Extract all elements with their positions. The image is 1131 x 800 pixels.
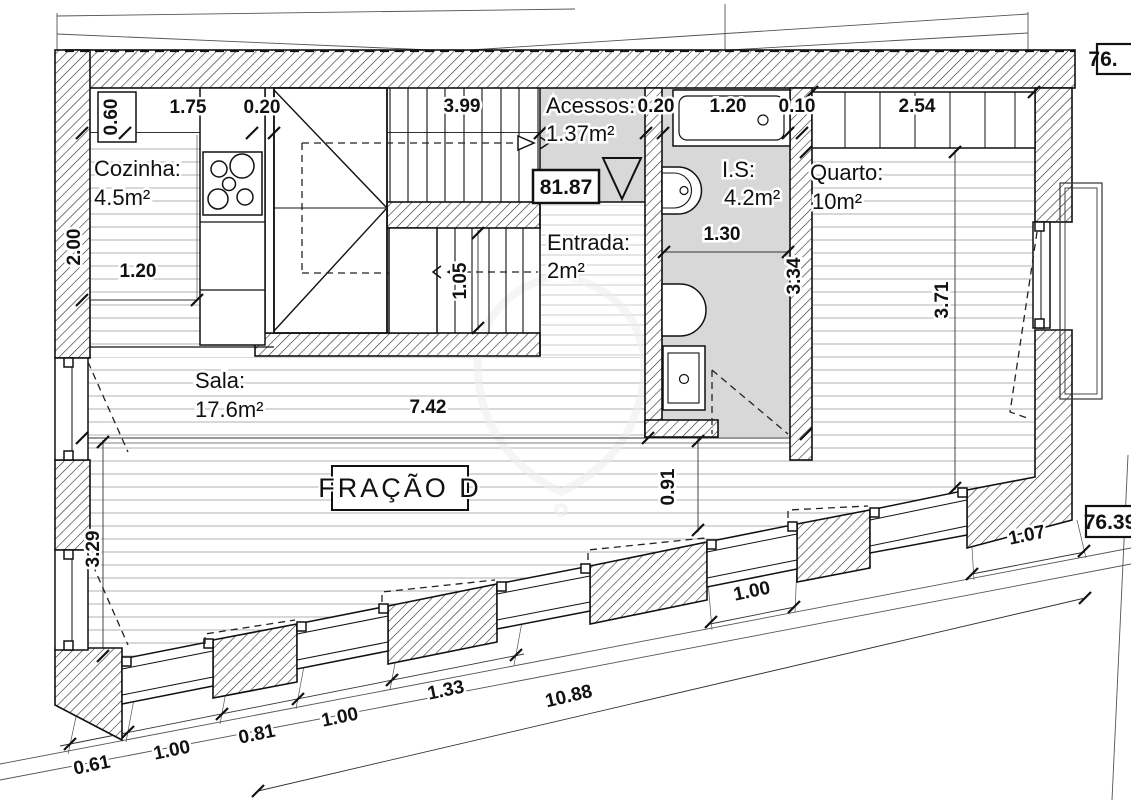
room-label-sala-name: Sala: bbox=[195, 368, 245, 393]
dim-bot-1088: 10.88 bbox=[543, 681, 594, 712]
level-site-upper: 76. bbox=[1088, 48, 1117, 71]
wall-left-upper bbox=[55, 50, 90, 358]
fraction-label: FRAÇÃO D bbox=[318, 472, 482, 503]
dim-top-020a: 0.20 bbox=[244, 97, 281, 118]
dim-bot-100b: 1.00 bbox=[320, 704, 360, 732]
dim-stair-105: 1.05 bbox=[450, 262, 471, 299]
dim-sala-329: 3.29 bbox=[83, 531, 104, 568]
dim-top-175: 1.75 bbox=[170, 97, 207, 118]
dim-bot-133: 1.33 bbox=[426, 677, 466, 705]
wall-right-upper bbox=[1035, 88, 1072, 222]
toilet-icon bbox=[662, 284, 706, 336]
floor-plan-page: Cozinha: 4.5m² Acessos: 1.37m² Entrada: … bbox=[0, 0, 1131, 800]
dim-bath-130: 1.30 bbox=[704, 224, 741, 245]
room-label-quarto-name: Quarto: bbox=[810, 160, 883, 185]
dim-left-200: 2.00 bbox=[64, 229, 85, 266]
level-landing: 81.87 bbox=[540, 176, 593, 199]
wall-stair-mid bbox=[387, 202, 540, 228]
floor-plan-drawing: Cozinha: 4.5m² Acessos: 1.37m² Entrada: … bbox=[0, 0, 1131, 800]
dim-kitchen-120: 1.20 bbox=[120, 261, 157, 282]
kitchen-counter bbox=[200, 88, 265, 345]
room-label-acessos-area: 1.37m² bbox=[546, 121, 614, 146]
stair-up-arrow-icon bbox=[518, 136, 534, 150]
wall-top bbox=[65, 50, 1075, 88]
room-label-entrada-name: Entrada: bbox=[547, 230, 630, 255]
dim-top-020b: 0.20 bbox=[638, 96, 675, 117]
stair-void bbox=[274, 88, 387, 333]
dim-top-120: 1.20 bbox=[710, 96, 747, 117]
room-label-is-area: 4.2m² bbox=[724, 185, 780, 210]
wall-bath-left bbox=[645, 88, 662, 437]
room-label-entrada-area: 2m² bbox=[547, 258, 585, 283]
dim-bot-081: 0.81 bbox=[237, 721, 278, 749]
dim-top-060: 0.60 bbox=[101, 99, 122, 136]
dim-top-399: 3.99 bbox=[444, 96, 481, 117]
level-site-lower: 76.39 bbox=[1084, 511, 1131, 534]
dim-bot-061: 0.61 bbox=[72, 752, 113, 780]
wall-stair-bottom bbox=[255, 333, 540, 356]
dim-bot-100c: 1.00 bbox=[732, 578, 772, 606]
dim-top-010: 0.10 bbox=[779, 96, 816, 117]
dim-bot-100a: 1.00 bbox=[152, 737, 192, 765]
wall-corner-bottom-left bbox=[55, 648, 122, 740]
stair-shaft bbox=[389, 228, 437, 333]
dim-sala-742: 7.42 bbox=[410, 397, 447, 418]
stair-core-left-wall bbox=[265, 88, 274, 333]
dim-mid-091: 0.91 bbox=[658, 468, 679, 505]
room-label-acessos-name: Acessos: bbox=[546, 93, 635, 118]
dim-right-334: 3.34 bbox=[784, 257, 805, 294]
room-label-cozinha-name: Cozinha: bbox=[94, 156, 181, 181]
room-label-is-name: I.S: bbox=[722, 157, 755, 182]
room-label-cozinha-area: 4.5m² bbox=[94, 185, 150, 210]
dim-top-254: 2.54 bbox=[899, 96, 936, 117]
wall-bath-bottom bbox=[645, 420, 718, 437]
room-label-sala-area: 17.6m² bbox=[195, 397, 263, 422]
room-label-quarto-area: 10m² bbox=[812, 189, 862, 214]
dim-right-371: 3.71 bbox=[932, 281, 953, 318]
